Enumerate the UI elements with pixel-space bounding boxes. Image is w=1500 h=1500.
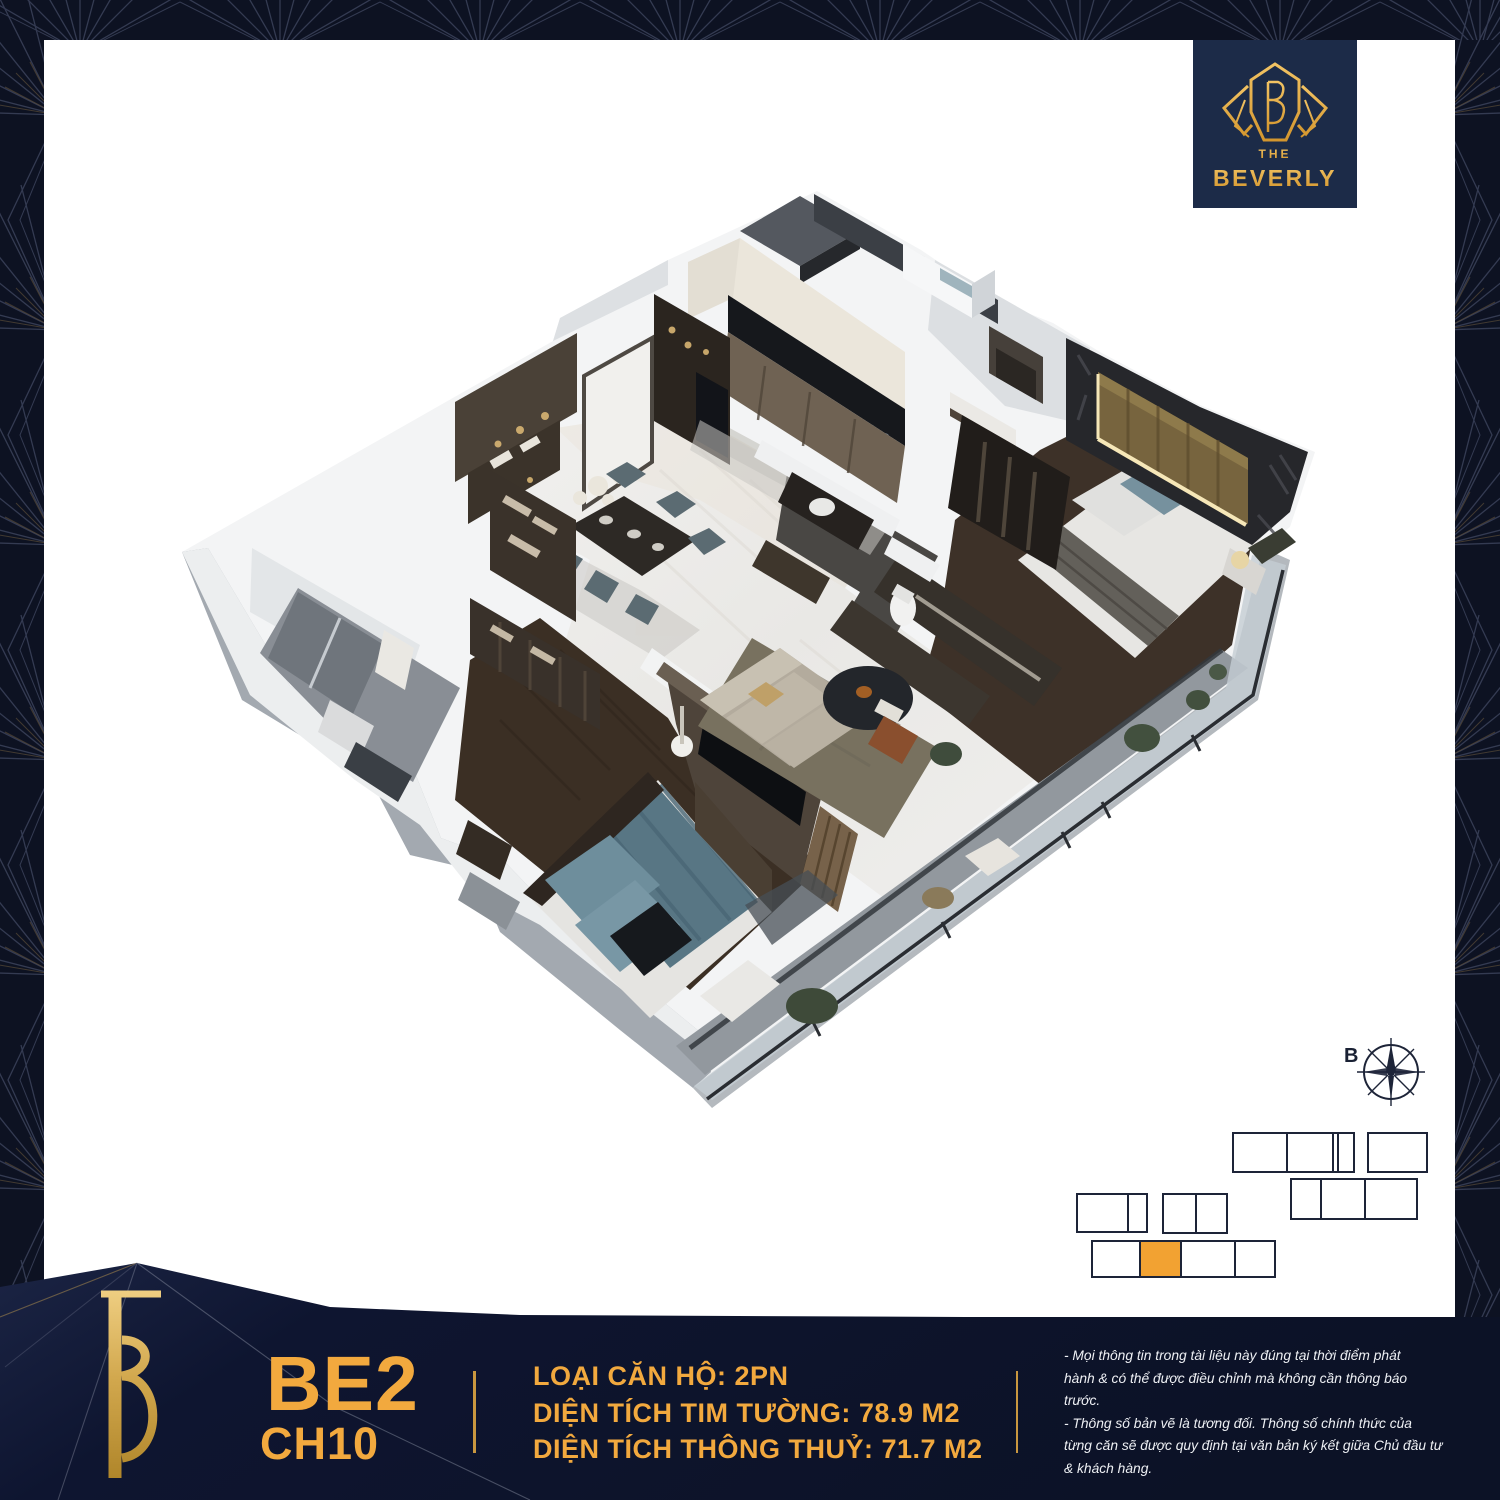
svg-text:B: B	[1344, 1045, 1358, 1067]
svg-text:BEVERLY: BEVERLY	[1213, 165, 1337, 191]
svg-text:THE: THE	[1259, 147, 1292, 161]
